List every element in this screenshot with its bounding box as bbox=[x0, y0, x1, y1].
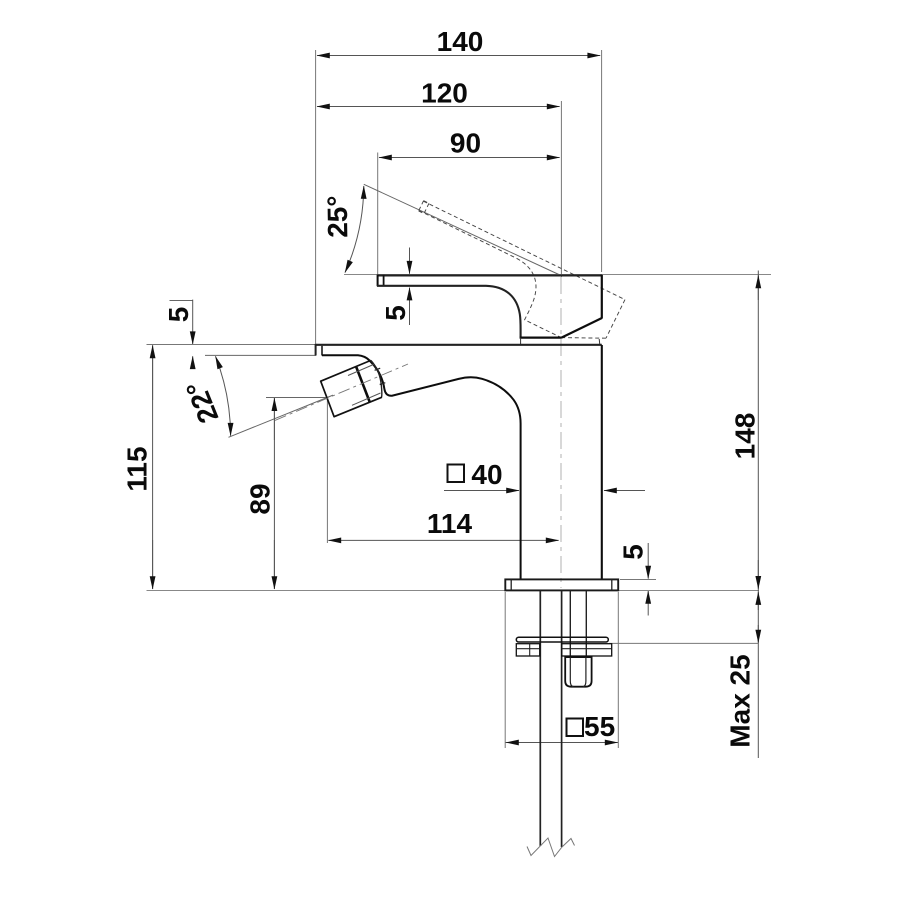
svg-text:Max 25: Max 25 bbox=[725, 654, 756, 747]
svg-text:25°: 25° bbox=[322, 195, 354, 238]
svg-text:89: 89 bbox=[245, 483, 276, 514]
svg-text:90: 90 bbox=[450, 128, 481, 159]
svg-text:22°: 22° bbox=[180, 377, 225, 428]
svg-text:40: 40 bbox=[471, 459, 502, 490]
svg-text:120: 120 bbox=[421, 78, 468, 109]
svg-text:115: 115 bbox=[122, 446, 153, 491]
svg-text:140: 140 bbox=[437, 26, 484, 57]
svg-text:5: 5 bbox=[380, 305, 411, 321]
svg-text:5: 5 bbox=[163, 307, 194, 323]
svg-text:55: 55 bbox=[584, 711, 615, 742]
svg-text:148: 148 bbox=[730, 413, 761, 460]
svg-text:114: 114 bbox=[427, 508, 473, 539]
svg-text:5: 5 bbox=[618, 544, 649, 560]
